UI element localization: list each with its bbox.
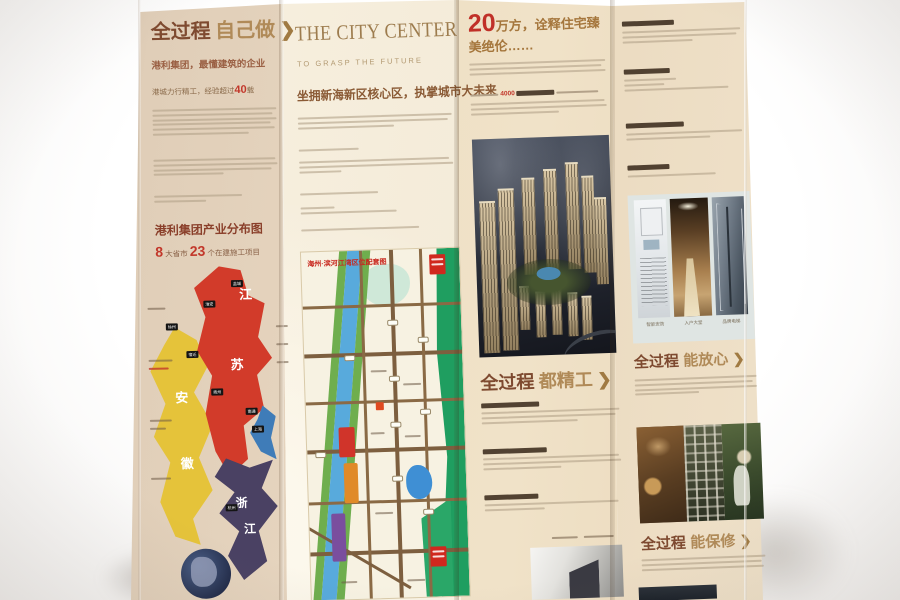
- item-lead-chip: [627, 164, 669, 171]
- stat-project-number: 23: [190, 243, 206, 259]
- city-chip: 淮安: [203, 301, 215, 308]
- map-label: [407, 579, 425, 582]
- text-line: [635, 391, 699, 395]
- section-heading-main: 全过程: [634, 353, 680, 372]
- project-badge: [429, 254, 446, 274]
- item-lead-chip: [624, 68, 670, 75]
- fold-crease-3: [610, 0, 615, 600]
- panel-2-content: THE CITY CENTER TO GRASP THE FUTURE 坐拥新海…: [284, 0, 475, 600]
- badge-text: [433, 555, 445, 557]
- panel-1-paragraph-1: [152, 107, 277, 138]
- tower: [543, 169, 560, 271]
- map-leader-label: [147, 308, 165, 310]
- item-lead-chip: [626, 121, 684, 128]
- panel-3-section-heading: 全过程 都精工 ❯: [480, 365, 612, 396]
- text-line: [153, 126, 275, 131]
- route-badge: [392, 475, 403, 481]
- panel-1-paragraph-2: [153, 157, 277, 179]
- panel-1-heading: 全过程 自己做 ❯: [150, 13, 295, 45]
- text-line: [153, 157, 275, 162]
- photo-frame-wall: [683, 424, 725, 521]
- landscape-greenery: [506, 258, 592, 307]
- map-label: [371, 370, 387, 373]
- experience-prefix: 港城力行精工，经验超过: [152, 86, 235, 97]
- tower: [565, 162, 582, 269]
- panel-3-paragraph-special-line: 4000: [470, 87, 606, 99]
- city-chip: 宿迁: [186, 351, 198, 358]
- panel-3-paragraph-1: [469, 59, 605, 78]
- text-line: [624, 78, 676, 82]
- dark-photo-bottom: [639, 584, 717, 600]
- ceiling-light: [678, 202, 698, 211]
- panel-2-subtitle: TO GRASP THE FUTURE: [297, 56, 423, 69]
- text-line: [622, 32, 736, 38]
- text-line: [301, 209, 397, 214]
- panel-3-item-3-lines: [485, 500, 623, 514]
- panel-1-map-stats: 8 大省市 23 个在建施工项目: [155, 242, 260, 260]
- text-line: [299, 148, 359, 152]
- device-screen: [643, 239, 659, 250]
- map-leader-label: [149, 368, 169, 370]
- tower: [594, 197, 609, 284]
- panel-2-paragraph-2: [299, 145, 453, 155]
- text-line: [153, 132, 249, 136]
- photo-intercom: [634, 199, 670, 318]
- badge-text: [432, 550, 444, 552]
- panel-1-experience-line: 港城力行精工，经验超过40载: [152, 84, 254, 98]
- elevator-frame: [716, 202, 746, 311]
- text-line: [471, 110, 559, 115]
- badge-text: [431, 258, 443, 260]
- headline-number: 20: [467, 9, 496, 38]
- project-badge-small: [376, 402, 384, 410]
- stat-province-label: 大省市: [165, 249, 188, 258]
- brochure-photo: 全过程 自己做 ❯ 港利集团，最懂建筑的企业 港城力行精工，经验超过40载 港利…: [0, 0, 900, 600]
- city-chip: 扬州: [211, 388, 223, 395]
- experience-suffix: 载: [247, 86, 255, 95]
- map-label: [375, 512, 393, 515]
- aerial-rendering-photo: [472, 135, 617, 358]
- text-line: [154, 167, 272, 171]
- map-leader-label: [150, 428, 166, 430]
- map-block-red: [338, 427, 355, 457]
- stat-project-label: 个在建施工项目: [207, 248, 260, 258]
- text-line: [300, 191, 378, 195]
- panel-2-paragraph-3: [299, 157, 453, 176]
- text-line: [154, 173, 224, 176]
- text-line: [483, 465, 561, 470]
- photo-caption: [552, 536, 578, 539]
- panel-4-section-heading-b: 全过程 能保修 ❯: [640, 529, 751, 554]
- text-fragment: [470, 93, 498, 96]
- interior-photo-box: 智能安防 入户大堂 品牌电梯: [628, 191, 756, 344]
- city-chip: 杭州: [226, 504, 238, 511]
- highlight-phrase: [517, 90, 555, 96]
- map-block-orange: [344, 463, 359, 503]
- city-chip: 盐城: [231, 280, 243, 287]
- panel-2-paragraph-6: [301, 225, 455, 235]
- lamp-glow: [645, 436, 672, 457]
- photo-lobby-corridor: [670, 198, 713, 317]
- panel-4-item-2-lines: [624, 75, 742, 94]
- badge-text: [431, 263, 443, 265]
- photo-caption: 入户大堂: [684, 320, 702, 327]
- photo-caption: 智能安防: [646, 321, 664, 328]
- city-chip: 上海: [252, 426, 264, 433]
- text-line: [485, 500, 619, 507]
- paper-edge-left: [138, 0, 141, 600]
- panel-3-headline: 20万方，诠释住宅臻美绝伦……: [467, 9, 610, 58]
- photo-person-outdoors: [722, 423, 764, 520]
- text-line: [152, 112, 272, 117]
- fold-crease-2: [454, 0, 459, 600]
- panel-2-paragraph-1: [298, 113, 452, 132]
- text-line: [628, 172, 716, 177]
- text-line: [153, 122, 271, 126]
- experience-number: 40: [234, 84, 246, 96]
- map-label: [405, 435, 421, 438]
- text-line: [154, 199, 206, 202]
- text-line: [299, 170, 341, 173]
- panel-1-heading-accent: 自己做: [215, 19, 275, 42]
- text-line: [154, 194, 242, 198]
- route-badge: [423, 509, 434, 515]
- spec-text: [640, 257, 668, 306]
- panel-4-paragraph-a: [635, 375, 758, 399]
- text-line: [626, 135, 710, 140]
- item-lead-chip: [483, 447, 547, 454]
- panel-1-map-title: 港利集团产业分布图: [155, 220, 263, 239]
- panel-3-paragraph-2: [471, 99, 607, 118]
- section-heading-accent: 能放心: [683, 351, 729, 370]
- panel-4-section-heading-a: 全过程 能放心 ❯: [634, 347, 745, 372]
- map-label: [341, 581, 357, 584]
- region-label-zhejiang-2: 江: [244, 520, 256, 537]
- chevron-icon: ❯: [732, 350, 744, 366]
- corridor-floor: [682, 258, 700, 317]
- photo-caption: 品牌电梯: [722, 318, 740, 325]
- fold-crease-1: [279, 0, 284, 600]
- region-label-jiangsu-2: 苏: [230, 354, 243, 373]
- inline-number: 4000: [500, 90, 515, 98]
- item-lead-chip: [484, 494, 538, 501]
- route-badge: [344, 355, 355, 361]
- panel-4-content: 智能安防 入户大堂 品牌电梯 全过程 能放心 ❯ 全过程 能保修 ❯: [614, 0, 773, 600]
- paper-edge-right: [744, 0, 747, 600]
- globe-landmass: [191, 557, 218, 588]
- route-badge: [420, 409, 431, 415]
- map-block-purple: [331, 513, 347, 561]
- device-panel: [640, 207, 663, 236]
- section-heading-accent: 能保修: [690, 533, 736, 552]
- section-heading-accent: 都精工: [538, 370, 593, 392]
- route-badge: [389, 376, 400, 382]
- globe-inset: [181, 548, 232, 599]
- text-line: [624, 83, 664, 87]
- city-location-map: 海州·滨河江湾区位配套图: [300, 247, 471, 600]
- text-fragment: [557, 90, 599, 93]
- section-heading-main: 全过程: [641, 535, 687, 554]
- text-line: [152, 107, 276, 112]
- route-badge: [390, 422, 401, 428]
- photo-shape: [569, 559, 600, 599]
- route-badge: [387, 320, 398, 326]
- project-badge: [430, 546, 447, 566]
- text-line: [301, 207, 335, 210]
- city-chip: 徐州: [166, 323, 178, 330]
- text-line: [485, 507, 545, 511]
- panel-1-content: 全过程 自己做 ❯ 港利集团，最懂建筑的企业 港城力行精工，经验超过40载 港利…: [141, 0, 294, 600]
- photo-elevator: [712, 196, 748, 315]
- panel-1-heading-main: 全过程: [150, 21, 210, 44]
- panel-3-item-1-lines: [481, 408, 619, 427]
- text-line: [623, 39, 693, 44]
- panel-2-title: THE CITY CENTER: [295, 17, 458, 47]
- photo-study: [636, 426, 686, 524]
- panel-4-item-3-lines: [626, 129, 744, 143]
- person-shirt: [733, 465, 751, 506]
- text-line: [626, 129, 742, 135]
- panel-3-content: 20万方，诠释住宅臻美绝伦…… 4000: [459, 0, 630, 600]
- text-line: [482, 419, 578, 424]
- region-label-anhui-2: 徽: [181, 453, 194, 472]
- route-badge: [418, 337, 429, 343]
- text-line: [153, 162, 277, 167]
- panel-1-subtitle: 港利集团，最懂建筑的企业: [151, 55, 265, 71]
- text-line: [624, 85, 728, 91]
- panel-4-item-1-lines: [622, 27, 740, 46]
- region-label-anhui-1: 安: [175, 387, 188, 406]
- panel-4-item-4-lines: [628, 171, 746, 180]
- stat-province-number: 8: [155, 244, 163, 260]
- china-industry-map: 江 苏 安 徽 浙 江 盐城 淮安 徐州 宿迁 扬州 南通 上海 杭州: [147, 265, 294, 600]
- panel-3-item-2-lines: [483, 454, 621, 473]
- item-lead-chip: [622, 20, 674, 27]
- panel-1-paragraph-3: [154, 193, 278, 205]
- map-leader-label: [151, 477, 171, 479]
- map-label: [371, 432, 385, 434]
- section-heading-main: 全过程: [480, 372, 535, 394]
- text-line: [153, 117, 277, 122]
- city-chip: 南通: [246, 408, 258, 415]
- map-lake: [406, 465, 433, 500]
- text-line: [298, 124, 394, 129]
- panel-2-paragraph-4: [300, 189, 454, 199]
- map-label: [403, 383, 421, 386]
- item-lead-chip: [481, 401, 539, 408]
- panel-4-paragraph-b: [641, 555, 765, 574]
- panel-2-paragraph-5: [301, 203, 455, 217]
- route-badge: [315, 452, 326, 458]
- text-line: [301, 226, 419, 232]
- tower: [479, 201, 500, 353]
